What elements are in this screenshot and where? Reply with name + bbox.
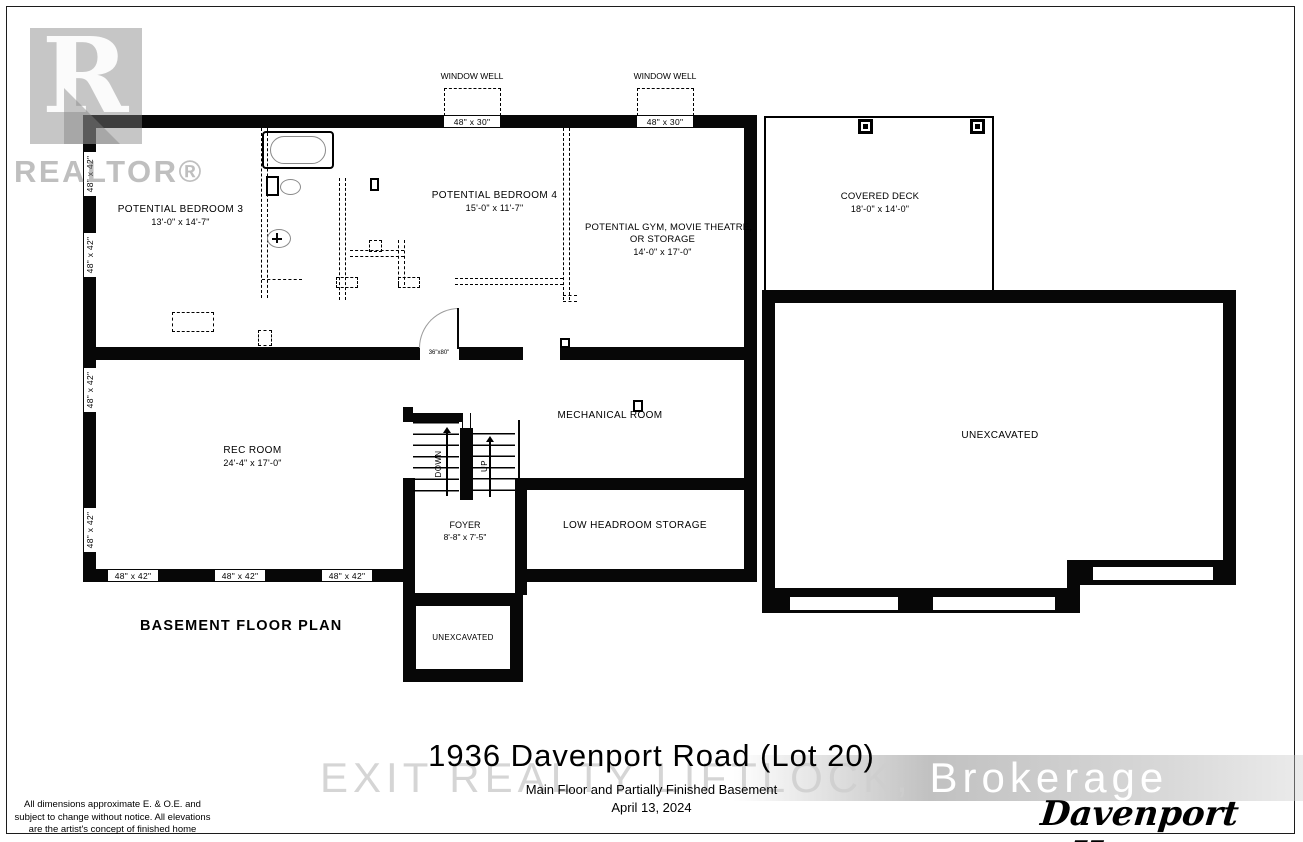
realtor-wordmark: REALTOR®	[14, 154, 204, 190]
stairs-down-label: DOWN	[433, 444, 444, 484]
window-left-3: 48" x 42"	[84, 368, 96, 412]
window-left-4: 48" x 42"	[84, 508, 96, 552]
disclaimer-line-2: subject to change without notice. All el…	[10, 812, 215, 825]
foundation-window-3	[1093, 567, 1213, 580]
disclaimer-line-1: All dimensions approximate E. & O.E. and	[10, 799, 215, 812]
door-size-label: 36"x80"	[420, 349, 458, 357]
disclaimer-text: All dimensions approximate E. & O.E. and…	[10, 799, 215, 837]
realtor-logo: R REALTOR®	[14, 12, 204, 187]
foundation-window-1	[790, 597, 898, 610]
builder-logo: Davenport Homes	[981, 794, 1294, 842]
realtor-logo-box: R	[30, 28, 142, 144]
disclaimer-line-3: are the artist's concept of finished hom…	[10, 824, 215, 837]
window-left-2: 48" x 42"	[84, 233, 96, 277]
window-top-2: 48" x 30"	[637, 116, 693, 127]
stairs-up-label: UP	[479, 454, 490, 478]
floor-plan-sheet: R REALTOR® WINDOW WELL WINDOW WELL 48" x…	[0, 0, 1303, 842]
address-title: 1936 Davenport Road (Lot 20)	[0, 738, 1303, 774]
plan-title: BASEMENT FLOOR PLAN	[140, 618, 342, 634]
foundation-window-2	[933, 597, 1055, 610]
column-marker-icon	[560, 338, 570, 348]
window-bottom-3: 48" x 42"	[322, 570, 372, 581]
window-bottom-2: 48" x 42"	[215, 570, 265, 581]
window-top-1: 48" x 30"	[444, 116, 500, 127]
column-marker-icon	[370, 178, 379, 191]
window-bottom-1: 48" x 42"	[108, 570, 158, 581]
column-marker-icon	[633, 400, 643, 412]
